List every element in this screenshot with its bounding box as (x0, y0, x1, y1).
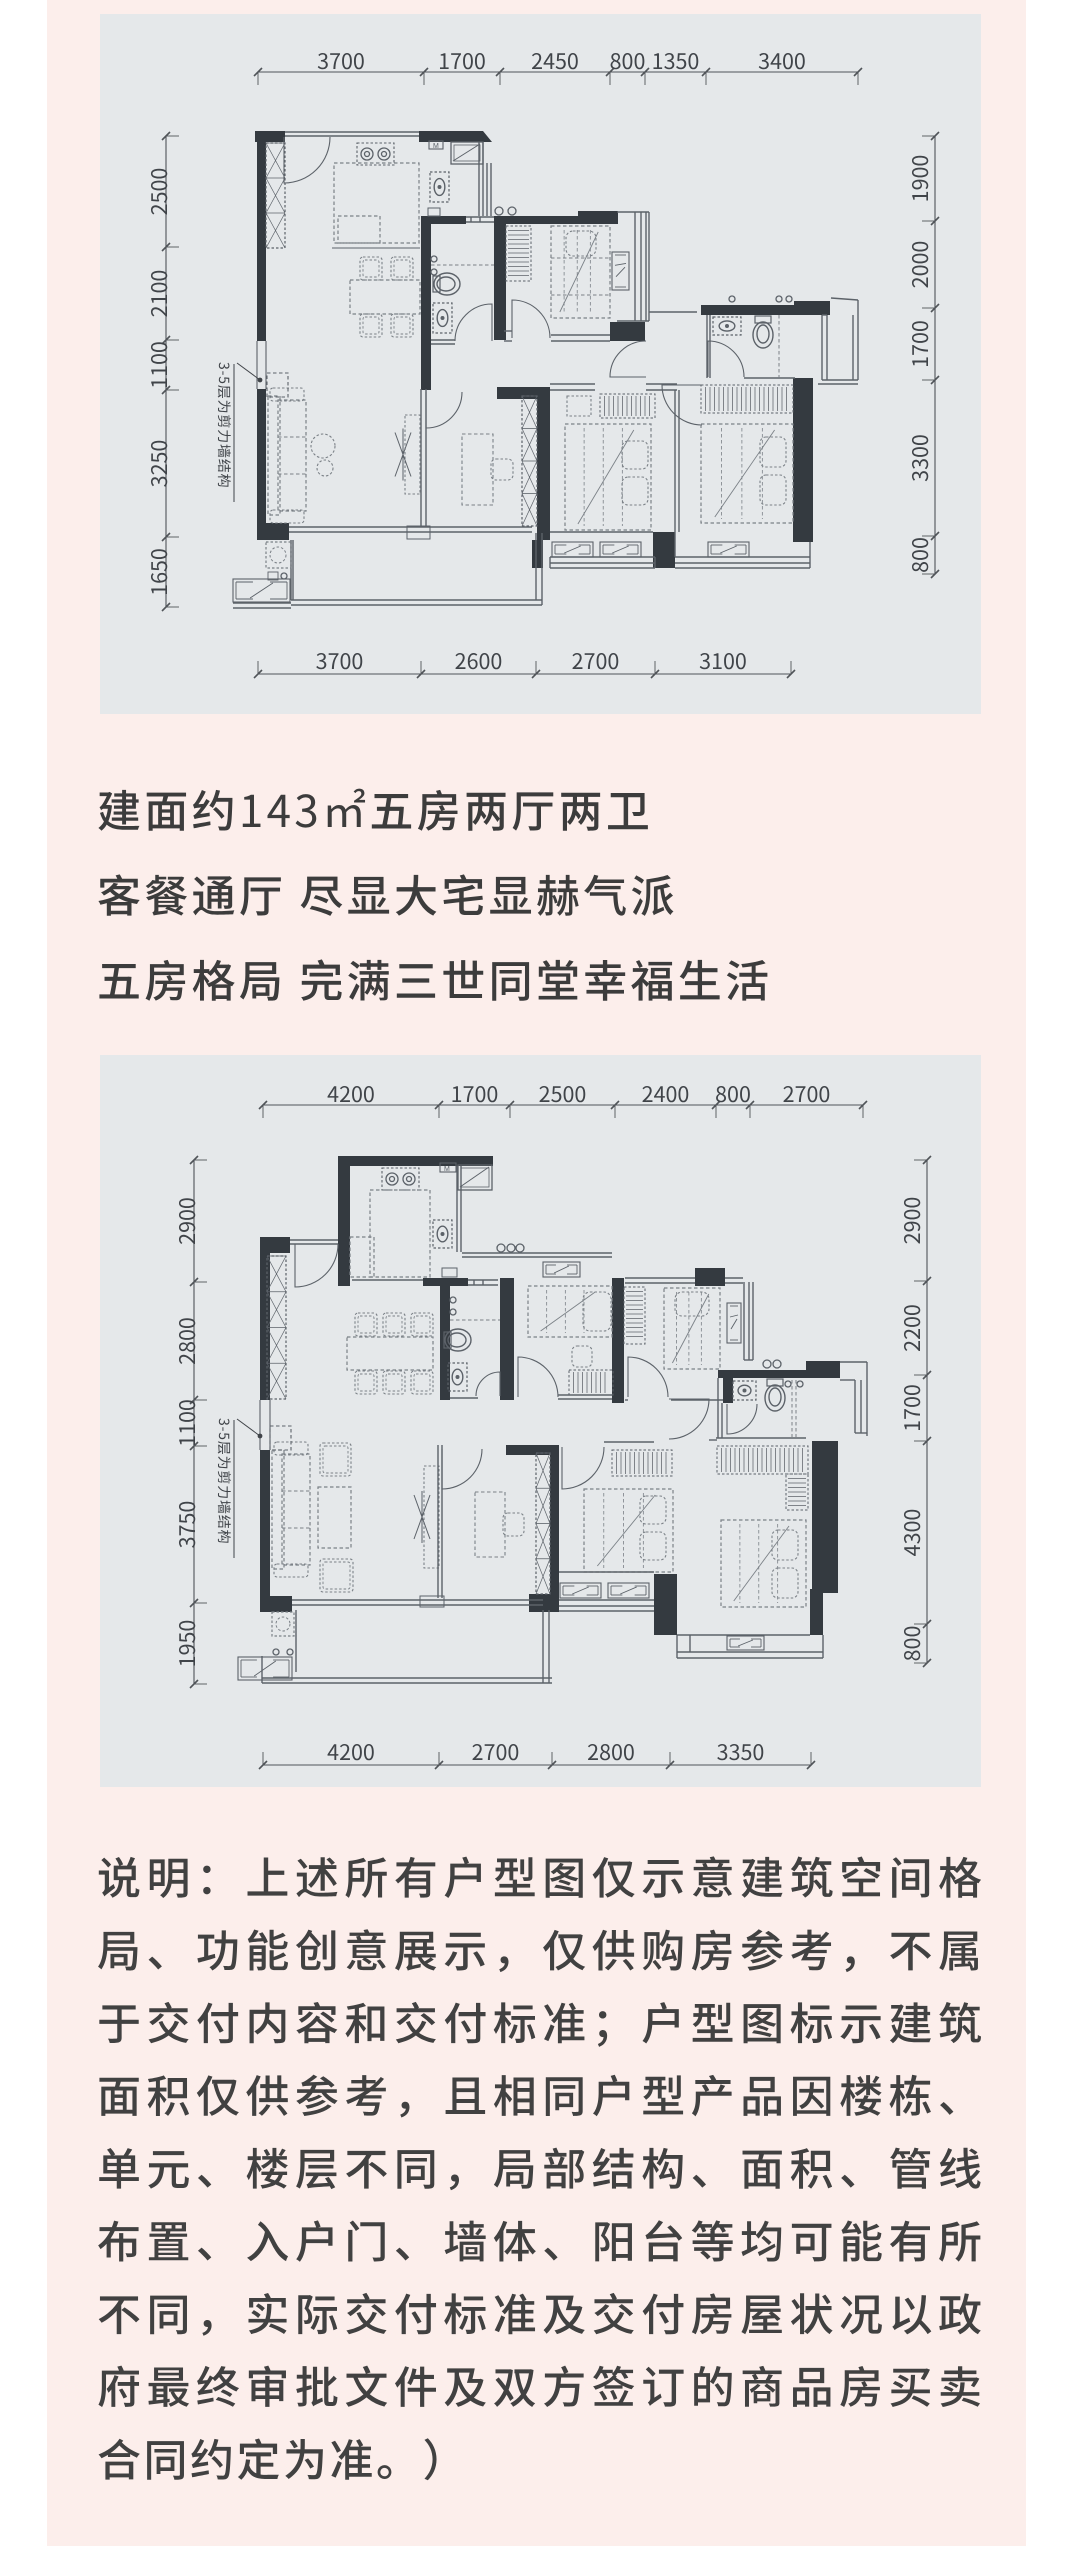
svg-text:M: M (444, 1166, 450, 1173)
svg-text:M: M (433, 143, 439, 150)
